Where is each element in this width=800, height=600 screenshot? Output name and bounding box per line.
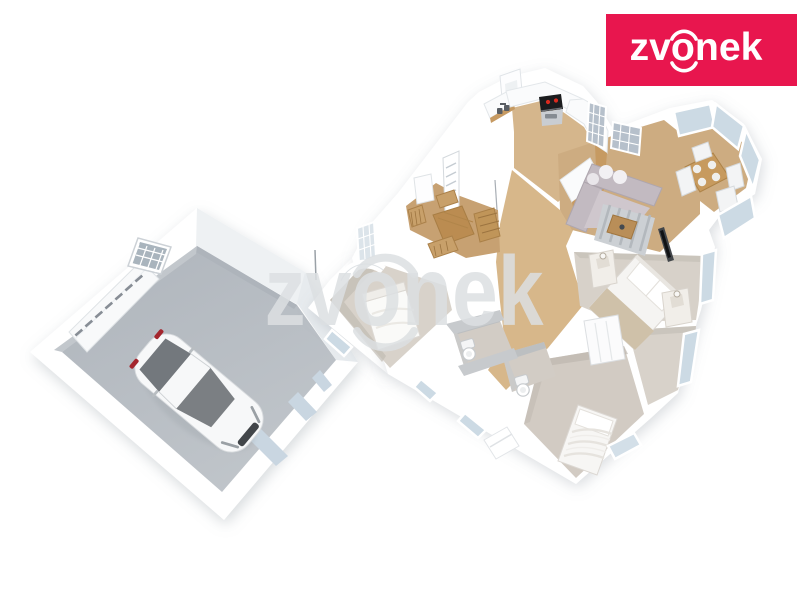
svg-text:zvonek: zvonek: [265, 236, 544, 346]
